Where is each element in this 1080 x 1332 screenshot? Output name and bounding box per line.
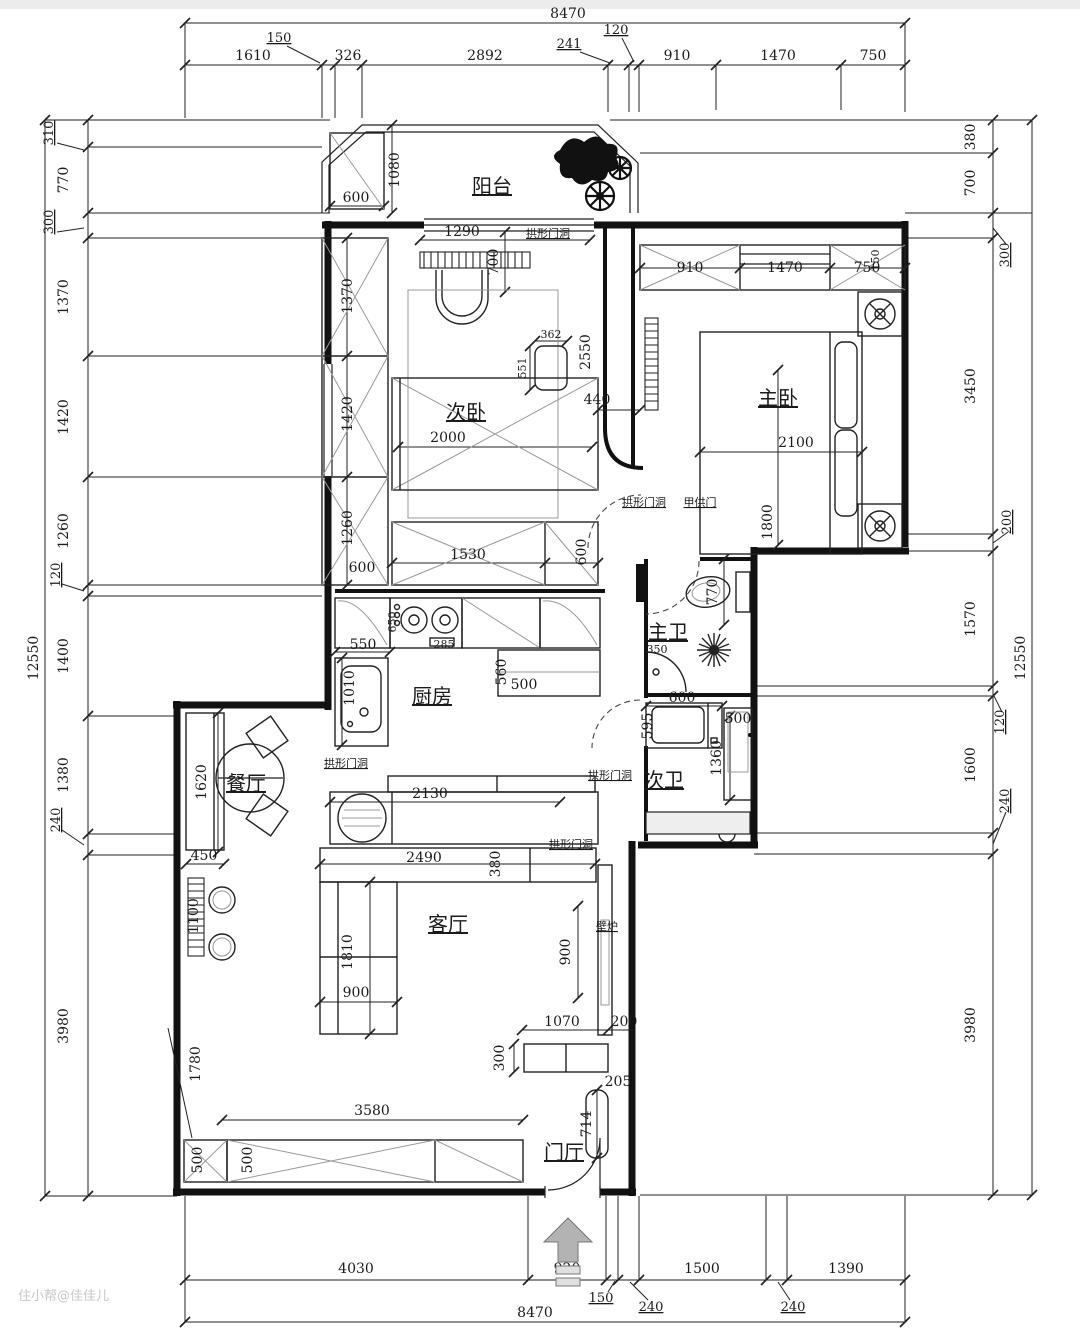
dim-bedroom2: 2550 xyxy=(578,334,594,370)
dim-bottom-seg: 4030 xyxy=(338,1261,374,1277)
dim-master: 1800 xyxy=(760,504,776,540)
shower-icon xyxy=(697,633,731,667)
room-label-second-bath: 次卫 xyxy=(644,768,684,792)
dim-bedroom2: 1260 xyxy=(340,510,356,546)
dim-master-bath: 350 xyxy=(647,643,668,656)
dim-dining: 450 xyxy=(191,848,218,864)
dim-right-seg: 700 xyxy=(963,170,979,197)
door-arc-second-bath xyxy=(592,700,640,748)
tv-cabinet-icon xyxy=(320,848,596,882)
radiator-icon xyxy=(420,252,530,268)
arch-opening-label: 拱形门洞 xyxy=(549,837,593,851)
dim-top-seg: 150 xyxy=(267,31,292,46)
door-leaf-icon xyxy=(636,564,644,602)
dim-bedroom2: 551 xyxy=(516,358,529,379)
dim-master: 150 xyxy=(869,250,882,271)
island-icon xyxy=(330,776,598,844)
room-label-dining: 餐厅 xyxy=(226,771,266,795)
sofa-icon xyxy=(320,882,397,1034)
wardrobe-icon xyxy=(184,1140,523,1182)
arch-opening-label: 拱形门洞 xyxy=(526,226,570,240)
dim-left-seg: 1380 xyxy=(56,757,72,793)
floorplan-canvas: 8470 1610 150 326 2892 241 120 910 1470 … xyxy=(0,0,1080,1332)
dim-left-seg: 3980 xyxy=(56,1008,72,1044)
dim-balcony: 600 xyxy=(343,190,370,206)
dim-kitchen: 1010 xyxy=(342,670,358,706)
dim-top-seg: 910 xyxy=(664,48,691,64)
dim-living: 1810 xyxy=(340,934,356,970)
dim-left-seg: 770 xyxy=(56,167,72,194)
chair-icon xyxy=(436,270,488,324)
scan-edge xyxy=(0,0,1080,9)
room-second-bath: 600 595 500 1360 次卫 xyxy=(640,690,752,834)
room-label-living: 客厅 xyxy=(428,912,468,936)
dim-dining: 1620 xyxy=(194,764,210,800)
room-living: 2490 380 1810 900 900 1070 200 300 205 7… xyxy=(184,848,637,1182)
dim-bedroom2: 600 xyxy=(349,560,376,576)
dim-bottom-total: 8470 xyxy=(517,1305,553,1321)
dim-left-seg: 300 xyxy=(42,210,57,235)
door-arc-master-bath xyxy=(646,561,699,614)
dim-kitchen: 500 xyxy=(511,677,538,693)
dim-bedroom2: 1420 xyxy=(340,396,356,432)
interior-dimension-lines xyxy=(168,120,910,1163)
dim-right-seg: 1600 xyxy=(963,747,979,783)
wardrobe-icon xyxy=(392,522,598,585)
dim-top-seg: 326 xyxy=(335,48,362,64)
dim-bedroom2: 1530 xyxy=(450,547,486,563)
dim-second-bath: 595 xyxy=(640,713,656,740)
dim-living: 1780 xyxy=(188,1046,204,1082)
dim-living: 1070 xyxy=(544,1014,580,1030)
dimension-chain-top: 8470 1610 150 326 2892 241 120 910 1470 … xyxy=(180,6,910,118)
dim-master: 1470 xyxy=(767,260,803,276)
shelf-icon xyxy=(646,812,750,834)
watermark: 住小帮@佳佳儿 xyxy=(18,1289,109,1304)
dim-living: 2490 xyxy=(406,850,442,866)
dim-kitchen: 285 xyxy=(434,638,455,651)
room-label-master-bath: 主卫 xyxy=(648,620,688,644)
dim-bottom-seg: 150 xyxy=(589,1291,614,1306)
fireplace-label: 壁炉 xyxy=(596,919,618,933)
chair-icon xyxy=(246,794,288,836)
dim-dining: 1100 xyxy=(186,898,202,934)
arch-opening-label: 拱形门洞 xyxy=(588,768,632,782)
dim-living: 714 xyxy=(579,1111,595,1138)
dim-right-seg: 120 xyxy=(993,710,1008,735)
dim-bedroom2: 600 xyxy=(574,539,590,566)
dim-bedroom2: 1370 xyxy=(340,278,356,314)
dim-balcony: 1290 xyxy=(444,224,480,240)
dim-kitchen: 560 xyxy=(494,659,510,686)
plant-icon xyxy=(554,136,631,210)
dim-bedroom2: 2000 xyxy=(430,430,466,446)
bed-icon xyxy=(392,378,598,490)
dim-left-seg: 1420 xyxy=(56,399,72,435)
dim-left-seg: 310 xyxy=(42,121,57,146)
dim-master: 910 xyxy=(677,260,704,276)
dim-bedroom2: 440 xyxy=(584,392,611,408)
dim-living: 500 xyxy=(190,1147,206,1174)
dim-left-seg: 1400 xyxy=(56,638,72,674)
dim-living: 300 xyxy=(492,1045,508,1072)
dim-top-seg: 241 xyxy=(557,37,582,52)
floorplan-drawing: 8470 1610 150 326 2892 241 120 910 1470 … xyxy=(0,0,1080,1332)
dim-living: 3580 xyxy=(354,1103,390,1119)
dimension-chain-bottom: 4030 920 150 240 1500 240 1390 8470 xyxy=(180,1196,910,1327)
dim-master-bath: 770 xyxy=(705,579,721,606)
dim-top-seg: 2892 xyxy=(467,48,503,64)
room-dining: 1620 450 1100 餐厅 xyxy=(186,713,288,960)
room-master-bedroom: 910 1470 750 150 2100 1800 主卧 拱形门洞 甲供门 xyxy=(622,245,905,554)
dim-kitchen: 550 xyxy=(350,637,377,653)
dim-top-seg: 1470 xyxy=(760,48,796,64)
dim-right-total: 12550 xyxy=(1013,636,1029,681)
room-label-kitchen: 厨房 xyxy=(412,684,452,708)
dim-living: 200 xyxy=(611,1014,638,1030)
dim-right-seg: 3980 xyxy=(963,1007,979,1043)
walls xyxy=(173,125,909,1198)
dim-left-seg: 240 xyxy=(49,808,64,833)
dim-top-seg: 1610 xyxy=(235,48,271,64)
owner-door-label: 甲供门 xyxy=(684,495,717,509)
dim-right-seg: 200 xyxy=(1000,510,1015,535)
nightstand-icon xyxy=(535,346,567,390)
dim-top-seg: 750 xyxy=(860,48,887,64)
chair-icon xyxy=(246,716,288,758)
dim-right-seg: 3450 xyxy=(963,368,979,404)
radiator-icon xyxy=(645,318,658,410)
dim-left-total: 12550 xyxy=(26,636,42,681)
dim-master: 2100 xyxy=(778,435,814,451)
dim-bottom-seg: 1390 xyxy=(828,1261,864,1277)
dim-bedroom2: 362 xyxy=(541,328,562,341)
dim-second-bath: 600 xyxy=(669,690,696,706)
corner-shelf-icon xyxy=(646,652,686,692)
dim-left-seg: 120 xyxy=(49,563,64,588)
dim-right-seg: 1570 xyxy=(963,601,979,637)
dim-right-seg: 380 xyxy=(963,124,979,151)
cabinet-icon xyxy=(540,598,600,648)
dim-living: 900 xyxy=(343,985,370,1001)
dim-living: 900 xyxy=(558,939,574,966)
dim-kitchen: 650 xyxy=(386,612,399,633)
speaker-icon xyxy=(858,504,902,548)
dim-kitchen: 2130 xyxy=(412,786,448,802)
dim-second-bath: 1360 xyxy=(709,740,725,776)
dim-top-total: 8470 xyxy=(550,6,586,22)
room-label-second-bedroom: 次卧 xyxy=(446,400,486,424)
dim-left-seg: 1370 xyxy=(56,279,72,315)
dim-second-bath: 500 xyxy=(725,711,752,727)
dim-right-seg: 240 xyxy=(998,789,1013,814)
dim-left-seg: 1260 xyxy=(56,513,72,549)
dimension-chain-right: 12550 380 700 300 3450 200 1570 120 1600… xyxy=(610,115,1037,1200)
dim-living: 500 xyxy=(240,1147,256,1174)
dim-top-seg: 120 xyxy=(604,23,629,38)
room-label-balcony: 阳台 xyxy=(472,174,512,198)
dim-bottom-seg: 240 xyxy=(639,1300,664,1315)
dim-bottom-seg: 240 xyxy=(781,1300,806,1315)
fireplace-icon xyxy=(598,865,612,1035)
dim-balcony: 1080 xyxy=(387,152,403,188)
dim-living: 205 xyxy=(605,1074,632,1090)
arch-opening-label: 拱形门洞 xyxy=(324,756,368,770)
room-kitchen: 550 1010 650 285 560 500 2130 厨房 拱形门洞 拱形… xyxy=(324,598,632,851)
room-label-master-bedroom: 主卧 xyxy=(758,386,798,410)
dim-right-seg: 300 xyxy=(998,243,1013,268)
dim-living: 380 xyxy=(488,851,504,878)
dim-bottom-seg: 1500 xyxy=(684,1261,720,1277)
speaker-icon xyxy=(858,292,902,336)
room-label-entry: 门厅 xyxy=(544,1140,584,1164)
arch-opening-label: 拱形门洞 xyxy=(622,495,666,509)
room-second-bedroom: 1370 1420 1260 600 2000 1530 600 362 551… xyxy=(322,238,610,585)
